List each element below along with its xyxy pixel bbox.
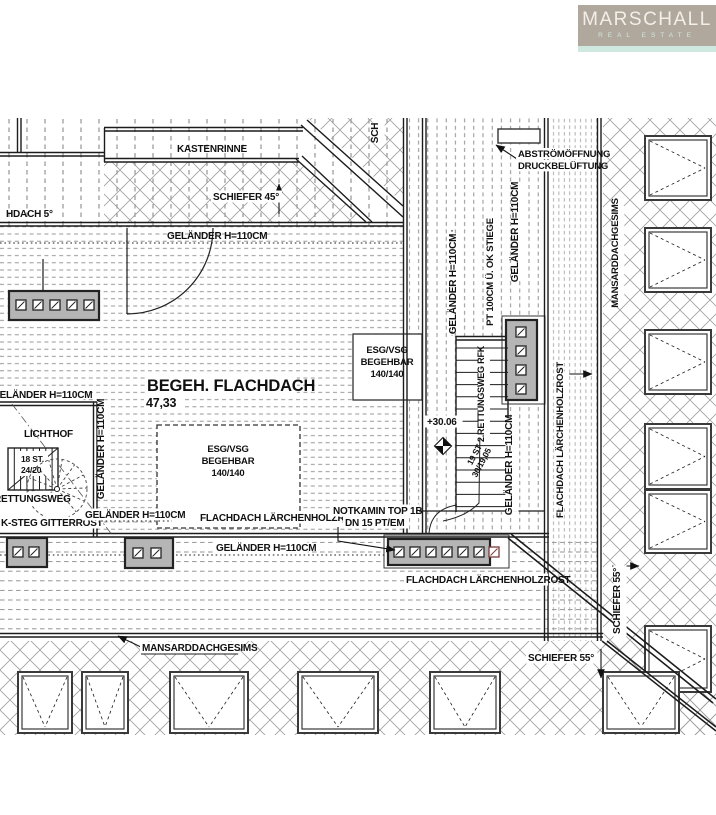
logo-accent-strip <box>578 46 716 52</box>
label-notkamin_2: DN 15 PT/EM <box>345 518 404 529</box>
logo: MARSCHALL REAL ESTATE <box>578 5 716 46</box>
spiral-stair-post <box>55 487 60 492</box>
label-v_rett: 2.RETTUNGSWEG RFK <box>476 345 486 442</box>
label-begehbar_value: 47,33 <box>146 396 177 410</box>
dormer <box>18 672 72 733</box>
dormer <box>645 228 711 292</box>
dormer <box>298 672 378 733</box>
label-gelaender_left: GELÄNDER H=110CM <box>0 388 92 401</box>
label-schiefer45: SCHIEFER 45° <box>213 192 279 203</box>
label-rettungsweg: RETTUNGSWEG <box>0 494 71 505</box>
label-gelaender_bottom: GELÄNDER H=110CM <box>216 541 316 554</box>
label-esg2_1: ESG/VSG <box>366 345 407 356</box>
dormer <box>170 672 248 733</box>
label-stairs_small_1: 18 ST. <box>21 454 44 464</box>
label-level: +30.06 <box>427 417 457 428</box>
label-v_mansard: MANSARDDACHGESIMS <box>610 198 621 308</box>
label-v_pt: PT 100CM Ü. OK STIEGE <box>485 218 496 326</box>
vent-duct <box>498 129 540 143</box>
logo-brand: MARSCHALL <box>578 9 716 31</box>
label-esg1_2: BEGEHBAR <box>202 456 255 467</box>
dormer <box>645 136 711 200</box>
label-notkamin_1: NOTKAMIN TOP 1B <box>333 506 422 517</box>
roof-plan-drawing: KASTENRINNESCHIEFER 45°HDACH 5°GELÄNDER … <box>0 0 716 815</box>
label-esg1_1: ESG/VSG <box>207 444 248 455</box>
label-v_schiefer55: SCHIEFER 55° <box>612 568 623 634</box>
label-sch_partial: SCH <box>370 123 381 144</box>
label-schiefer55_h: SCHIEFER 55° <box>528 653 594 664</box>
label-v_gel4: GELÄNDER H=110CM <box>94 399 107 499</box>
label-rost_bottom_2: FLACHDACH LÄRCHENHOLZROST <box>406 573 571 586</box>
roof-hatch-box <box>125 538 173 568</box>
label-v_gel3: GELÄNDER H=110CM <box>502 415 515 515</box>
label-stairs_small_2: 24/20 <box>21 465 42 475</box>
dormer <box>645 330 711 394</box>
label-gelaender_lichthof: GELÄNDER H=110CM <box>85 508 185 521</box>
dormer <box>82 672 128 733</box>
dormer <box>430 672 500 733</box>
label-begehbar_title: BEGEH. FLACHDACH <box>147 377 315 395</box>
label-gelaender_top: GELÄNDER H=110CM <box>167 229 267 242</box>
label-esg1_3: 140/140 <box>212 468 245 479</box>
label-mansard_bottom: MANSARDDACHGESIMS <box>142 643 258 654</box>
dormer <box>645 424 711 489</box>
label-v_rost: FLACHDACH LÄRCHENHOLZROST <box>555 362 566 518</box>
page: KASTENRINNESCHIEFER 45°HDACH 5°GELÄNDER … <box>0 0 716 815</box>
label-abstroem_2: DRUCKBELÜFTUNG <box>518 161 608 172</box>
label-esg2_3: 140/140 <box>371 369 404 380</box>
dormer <box>645 490 711 553</box>
label-v_gel1: GELÄNDER H=110CM <box>446 234 459 334</box>
label-kastenrinne: KASTENRINNE <box>177 144 248 155</box>
label-esg2_2: BEGEHBAR <box>361 357 414 368</box>
logo-tagline: REAL ESTATE <box>578 32 716 39</box>
label-lichthof: LICHTHOF <box>24 429 73 440</box>
label-abstroem_1: ABSTRÖMÖFFNUNG <box>518 149 610 160</box>
label-flachdach5: HDACH 5° <box>6 209 53 220</box>
label-v_gel2: GELÄNDER H=110CM <box>508 182 521 282</box>
dormer <box>603 672 679 733</box>
